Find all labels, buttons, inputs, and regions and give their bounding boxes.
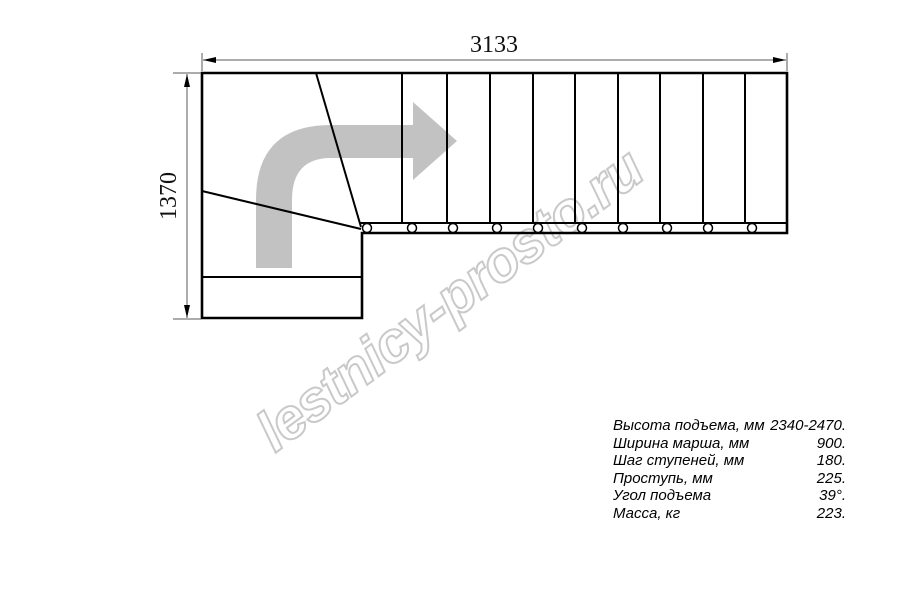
spec-row-tread-depth: Проступь, мм 225. <box>613 470 846 488</box>
spec-value: 223. <box>817 505 846 523</box>
left-dimension-label: 1370 <box>156 172 182 220</box>
spec-row-height: Высота подъема, мм 2340-2470. <box>613 417 846 435</box>
spec-row-mass: Масса, кг 223. <box>613 505 846 523</box>
watermark-text: lestnicy-prosto.ru <box>245 136 655 464</box>
spec-label: Ширина марша, мм <box>613 435 749 453</box>
ascent-direction-arrow-icon <box>256 102 457 268</box>
dimension-top: 3133 <box>202 32 787 71</box>
spec-label: Проступь, мм <box>613 470 713 488</box>
specs-table: Высота подъема, мм 2340-2470. Ширина мар… <box>613 417 846 522</box>
spec-value: 39°. <box>819 487 846 505</box>
staircase-drawing-page: lestnicy-prosto.ru <box>0 0 900 600</box>
spec-label: Угол подъема <box>613 487 711 505</box>
top-dimension-label: 3133 <box>470 32 518 58</box>
dimension-arrow-down-icon <box>184 305 190 318</box>
dimension-arrow-right-icon <box>773 57 786 63</box>
dimension-arrow-left-icon <box>203 57 216 63</box>
spec-value: 225. <box>817 470 846 488</box>
spec-label: Шаг ступеней, мм <box>613 452 744 470</box>
spec-label: Высота подъема, мм <box>613 417 765 435</box>
spec-row-ascent-angle: Угол подъема 39°. <box>613 487 846 505</box>
spec-label: Масса, кг <box>613 505 680 523</box>
watermark: lestnicy-prosto.ru <box>245 136 655 464</box>
spec-row-flight-width: Ширина марша, мм 900. <box>613 435 846 453</box>
spec-value: 180. <box>817 452 846 470</box>
dimension-left: 1370 <box>156 73 201 319</box>
spec-value: 2340-2470. <box>770 417 846 435</box>
spec-row-step-pitch: Шаг ступеней, мм 180. <box>613 452 846 470</box>
dimension-arrow-up-icon <box>184 74 190 87</box>
spec-value: 900. <box>817 435 846 453</box>
